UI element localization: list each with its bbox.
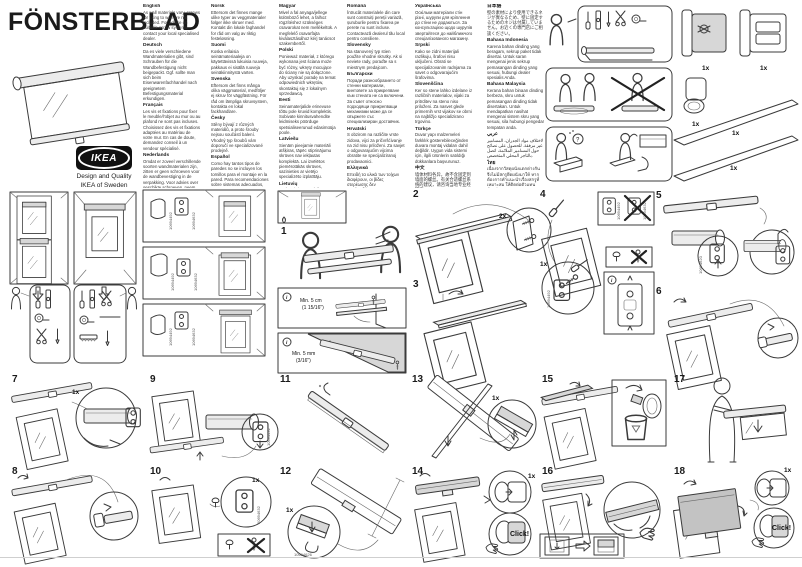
step15-illustration [540,380,668,466]
step-number-1: 1 [281,226,287,237]
part-bracket-right-illustration [740,10,786,56]
step1-min-5mm-box: i Min. 5 mm (3/16") [278,333,408,375]
language-text: Les vis et fixations pour fixer le meubl… [143,109,201,151]
language-column-5: УкраїнськаОскільки матеріали стін різні,… [415,4,473,188]
roller-blind-hero-illustration [12,48,138,148]
instruction-sheet-page: FÖNSTERBLAD IKEA Design and Quality IKEA… [0,0,802,567]
part-number: 10694492 [170,272,175,291]
step14-illustration: 1x Click! [410,470,538,558]
tagline-line1: Design and Quality [58,173,150,182]
part-number: 10694632 [191,211,196,230]
language-block: LatviešuSienām pieejamie materiāli atšķi… [279,137,337,179]
part-cover-cap-illustration [684,78,706,113]
language-block: EspañolComo hay tantos tipos de paredes … [211,155,269,188]
language-disclaimer-columns: EnglishAs wall materials vary, screws fo… [143,4,545,188]
language-block: SvenskaEftersom det finns många olika vä… [211,77,269,114]
step1-measuring-illustration [290,218,408,288]
language-text: Duvar yapı malzemeleri farklılık göstere… [415,132,473,163]
step6-illustration [660,292,800,372]
language-text: Оскільки матеріали стін різні, шурупи дл… [415,10,473,41]
language-text: Como hay tantos tipos de paredes no se i… [211,161,269,188]
part-number: 10694632 [193,272,198,291]
language-text: Omdat er zoveel verschillende soorten wa… [143,159,201,188]
language-block: LietuviųKadangi sienų apdailos medžiagos… [279,182,337,188]
info-icon: i [611,279,613,284]
language-block: ไทยเนื่องจากวัสดุผนังแตกต่างกัน จึงไม่มี… [487,161,545,188]
step8-illustration [10,472,142,556]
ikea-logo: IKEA [76,146,132,170]
step5-illustration: 10694620 [660,194,800,286]
language-text: Sienām pieejamie materiāli atšķiras, tāp… [279,143,337,180]
roll-into-bracket: 10694620 [672,230,738,276]
qty-label: 2x [499,213,507,220]
ikea-logo-text: IKEA [91,153,117,164]
qty-label: 1x [540,261,548,268]
language-block: FrançaisLes vis et fixations pour fixer … [143,103,201,151]
language-block: SrpskiKako se zidni materijali razlikuju… [415,43,473,80]
step7-illustration: 1x [10,380,142,462]
qty-label: 1x [492,395,500,402]
language-column-1: EnglishAs wall materials vary, screws fo… [143,4,201,188]
language-block: Bahasa IndonesiaKarena bahan dinding yan… [487,38,545,80]
part-qty-label: 1x [760,65,768,72]
language-text: Ettersom det finnes mange ulike typer av… [211,10,269,41]
language-block: EnglishAs wall materials vary, screws fo… [143,4,201,41]
qty-label: 1x [252,477,260,484]
bracket-detail-info-box: i [604,272,654,334]
language-block: MagyarMivel a fal anyaga/jellege különbö… [279,4,337,46]
language-block: SlovenščinaKer so stene lahko izdelane i… [415,82,473,124]
language-text: 壁の素材により使用できるネジが異なるため、壁に固定するためのネジは付属していませ… [487,10,545,36]
part-qty-label: 1x [730,165,738,172]
language-block: SlovenskyNa stanovený typ stien použite … [347,43,405,70]
part-number: 10694620 [698,255,703,274]
bracket-option-frame: 10694492 10694632 [143,247,265,299]
recess-mount-panel [10,192,68,284]
pin-not-screw-box [606,247,652,267]
click-label: Click! [510,531,529,538]
step9-illustration: 10694492 [148,380,274,464]
part-number: 10694632 [191,327,196,346]
tools-needed-illustration [546,6,674,64]
language-text: Ker so stene lahko izdelane iz različnih… [415,88,473,125]
dispose-tape-box [612,380,666,446]
language-block: RomânâÎntrucât materialele din care sunt… [347,4,405,41]
step4-side-boxes: 10694492 10694632 i [598,192,656,334]
min-5mm-inch-label: (3/16") [296,358,311,364]
step17-illustration [680,376,798,464]
language-block: NorskEttersom det finnes mange ulike typ… [211,4,269,41]
correct-bracket-box: 10694492 10694632 [598,192,654,225]
language-text: Da es viele verschiedene Wandmaterialien… [143,49,201,101]
language-text: Koska erilaisia seinämateriaaleja on käy… [211,49,269,75]
min-5mm-label: Min. 5 mm [292,351,315,357]
language-text: Eftersom det finns många olika väggmater… [211,83,269,114]
language-block: HrvatskiS obzirom na različite vrste zid… [347,127,405,164]
step3-illustration [413,286,553,374]
language-block: PolskiPonieważ materiał, z którego wykon… [279,48,337,96]
pin-not-screw-box [218,534,270,556]
min-5cm-label: Min. 5 cm [300,298,322,304]
qty-label: 1x [528,473,536,480]
step18-illustration: 1x Click! [672,470,800,558]
language-text: Stěny bývají z různých materiálů, a prot… [211,122,269,153]
two-person-assembly-warning [546,68,674,123]
step2-illustration: 2x [413,196,553,280]
click-label: Click! [772,525,791,532]
language-block: عربيلاختلاف مواد الجدران، المسامير غير م… [487,132,545,159]
page-footer-rule [0,557,802,558]
qty-label: 1x [72,389,80,396]
brand-tagline: Design and Quality IKEA of Sweden [58,173,150,191]
step12-illustration: 1x 10694626 [278,470,408,558]
part-qty-label: 1x [702,65,710,72]
language-text: As wall materials vary, screws for fixin… [143,10,201,41]
qty-label: 1x [784,467,792,474]
part-number: 10694492 [168,327,173,346]
included-parts-list: 1x 1x 1x 1x 1x [680,4,802,186]
part-qty-label: 1x [692,121,700,128]
bracket-option-recess: 10694492 10694632 [143,190,265,242]
language-column-4: RomânâÎntrucât materialele din care sunt… [347,4,405,188]
language-text: Kadangi sienų apdailos medžiagos būna įv… [279,187,337,188]
language-block: УкраїнськаОскільки матеріали стін різні,… [415,4,473,41]
required-tools-boxes [8,283,138,367]
info-icon: i [286,341,288,346]
step13-illustration: 1x [418,378,538,464]
step10-illustration: 1x 10694632 [148,472,274,558]
language-text: لاختلاف مواد الجدران، المسامير غير مرفقة… [487,138,545,159]
language-column-2: NorskEttersom det finnes mange ulike typ… [211,4,269,188]
language-text: S obzirom na različite vrste zidova, vij… [347,132,405,163]
part-strip-2-illustration [674,136,798,181]
part-qty-label: 1x [732,130,740,137]
part-number: 10694492 [616,201,621,220]
language-block: ČeskyStěny bývají z různých materiálů, a… [211,116,269,153]
hook-detail [744,229,794,274]
min-5cm-inch-label: (1 15/16") [302,305,324,311]
language-block: NederlandsOmdat er zoveel verschillende … [143,153,201,188]
language-column-6: 日本語壁の素材により使用できるネジが異なるため、壁に固定するためのネジは付属して… [487,4,545,188]
language-text: Ponieważ materiał, z którego wykonana je… [279,54,337,96]
bracket-option-panels: 10694492 10694632 10694492 10694632 1069… [143,190,267,368]
language-block: TürkçeDuvar yapı malzemeleri farklılık g… [415,127,473,164]
qty-label: 1x [286,507,294,514]
part-bracket-left-illustration [682,10,726,56]
language-text: Karena bahan dinding yang beragam, sekru… [487,44,545,81]
language-block: ΕλληνικάΕπειδή τα υλικά των τοίχων διαφέ… [347,166,405,188]
info-icon: i [286,296,288,301]
language-block: БългарскиПоради разнообразието от стенни… [347,72,405,125]
language-text: 墙体材料各异，故不含固定到墙面的螺丝。有关合适螺丝系统的建议，请咨询当地专业经销… [415,172,473,188]
svg-text:?: ? [576,138,580,144]
step4-illustration: 1x 10694492 [538,196,600,372]
language-text: Mivel a fal anyaga/jellege különböző leh… [279,10,337,47]
language-block: 日本語壁の素材により使用できるネジが異なるため、壁に固定するためのネジは付属して… [487,4,545,36]
wall-mount-panel [74,192,136,284]
bracket-option-wall: 10694492 10694632 [143,304,265,356]
language-block: EestiSeinamaterjalide erinevuse tõttu po… [279,98,337,135]
language-text: Поради разнообразието от стенни материал… [347,78,405,125]
language-text: Întrucât materialele din care sunt const… [347,10,405,41]
part-number: 10694492 [168,211,173,230]
step1-min-5cm-box: i Min. 5 cm (1 15/16") [278,288,408,330]
help-contact-ikea-illustration: ? [546,127,674,183]
language-block: 中文墙体材料各异，故不含固定到墙面的螺丝。有关合适螺丝系统的建议，请咨询当地专业… [415,166,473,188]
language-text: Kerana bahan binaan dinding berbeza, skr… [487,88,545,130]
step11-illustration [286,382,406,462]
language-text: Seinamaterjalide erinevuse tõttu pole kr… [279,104,337,135]
language-block: SuomiKoska erilaisia seinämateriaaleja o… [211,43,269,75]
part-number: 10694632 [256,505,261,524]
language-text: Na stanovený typ stien použite vhodné sk… [347,49,405,70]
part-number: 10694492 [546,289,551,308]
step16-illustration [540,472,668,558]
part-number: 10694492 [266,427,271,446]
language-block: Bahasa MalaysiaKerana bahan binaan dindi… [487,82,545,130]
language-text: Kako se zidni materijali razlikuju, šraf… [415,49,473,80]
language-column-3: MagyarMivel a fal anyaga/jellege különbö… [279,4,337,188]
language-text: Επειδή τα υλικά των τοίχων διαφέρουν, οι… [347,172,405,188]
language-block: DeutschDa es viele verschiedene Wandmate… [143,43,201,101]
language-text: เนื่องจากวัสดุผนังแตกต่างกัน จึงไม่มีสกร… [487,166,545,188]
